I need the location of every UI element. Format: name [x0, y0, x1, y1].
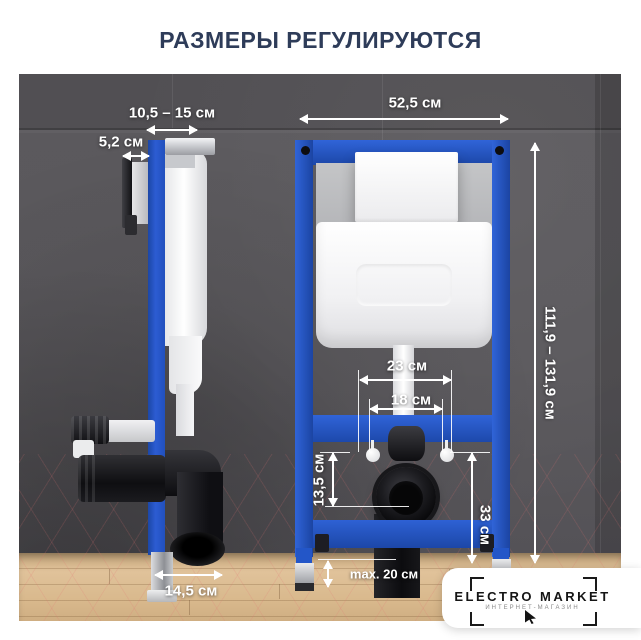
wall-upper-band	[19, 74, 621, 130]
flush-plate-front	[355, 152, 458, 222]
dim-label-span-inner: 18 см	[391, 392, 431, 409]
dim-label-legs-max: max. 20 см	[350, 567, 418, 582]
floor-joint	[279, 584, 280, 599]
dim-label-depth-range: 10,5 – 15 см	[129, 105, 215, 122]
dimension-arrow	[327, 561, 329, 587]
dimension-arrow	[332, 453, 334, 506]
dimension-arrow	[534, 143, 536, 563]
product-photo: 10,5 – 15 см 5,2 см 52,5 см 111,9 – 131,…	[19, 74, 621, 621]
drain-elbow-mouth	[170, 532, 225, 566]
frame-crossbar-lower	[313, 520, 492, 548]
flush-plate-clip	[125, 215, 137, 235]
cistern-side	[165, 150, 207, 346]
dimension-arrow	[123, 155, 149, 157]
dim-label-outlet-height: 33 см	[477, 505, 494, 545]
floor-joint	[189, 600, 190, 615]
dim-label-span-outer: 23 см	[387, 358, 427, 375]
frame-rail-right	[492, 140, 510, 557]
flush-pipe-side	[176, 384, 194, 436]
dim-label-base-depth: 14,5 см	[165, 583, 218, 600]
corner-screw	[495, 146, 504, 155]
floor-joint	[109, 569, 110, 584]
foot-pad-left	[295, 583, 314, 591]
dimension-arrow	[360, 379, 451, 381]
brand-name: ELECTRO MARKET	[442, 589, 623, 604]
drain-connector-ribs	[78, 455, 98, 502]
dim-label-outlet-drop: 13,5 см	[311, 454, 328, 507]
dim-label-frame-width: 52,5 см	[389, 95, 442, 112]
page-title: РАЗМЕРЫ РЕГУЛИРУЮТСЯ	[0, 27, 641, 54]
corner-screw	[301, 146, 310, 155]
lower-bracket	[315, 534, 329, 552]
brand-card: ELECTRO MARKET ИНТЕРНЕТ-МАГАЗИН	[442, 568, 641, 628]
outlet-pipe-hole	[389, 481, 423, 515]
wall-seam	[600, 74, 601, 553]
dimension-arrow	[155, 574, 222, 576]
cursor-icon	[524, 610, 537, 624]
wall-bracket	[165, 138, 215, 155]
wall-bracket	[165, 155, 195, 168]
crop-frame-icon	[583, 612, 597, 626]
pipe-fitting-black	[388, 426, 425, 461]
dimension-arrow	[370, 408, 442, 410]
dimension-arrow	[471, 453, 473, 563]
crop-frame-icon	[470, 612, 484, 626]
wall-right-band	[595, 74, 621, 553]
dimension-arrow	[300, 118, 508, 120]
cistern-emboss	[356, 264, 452, 306]
dimension-arrow	[147, 129, 197, 131]
dim-label-plate-depth: 5,2 см	[99, 134, 143, 151]
dim-label-frame-height: 111,9 – 131,9 см	[542, 306, 559, 420]
wall-seam	[382, 74, 383, 140]
outlet-pipe-opening	[376, 467, 436, 527]
front-foot-left	[295, 563, 314, 585]
